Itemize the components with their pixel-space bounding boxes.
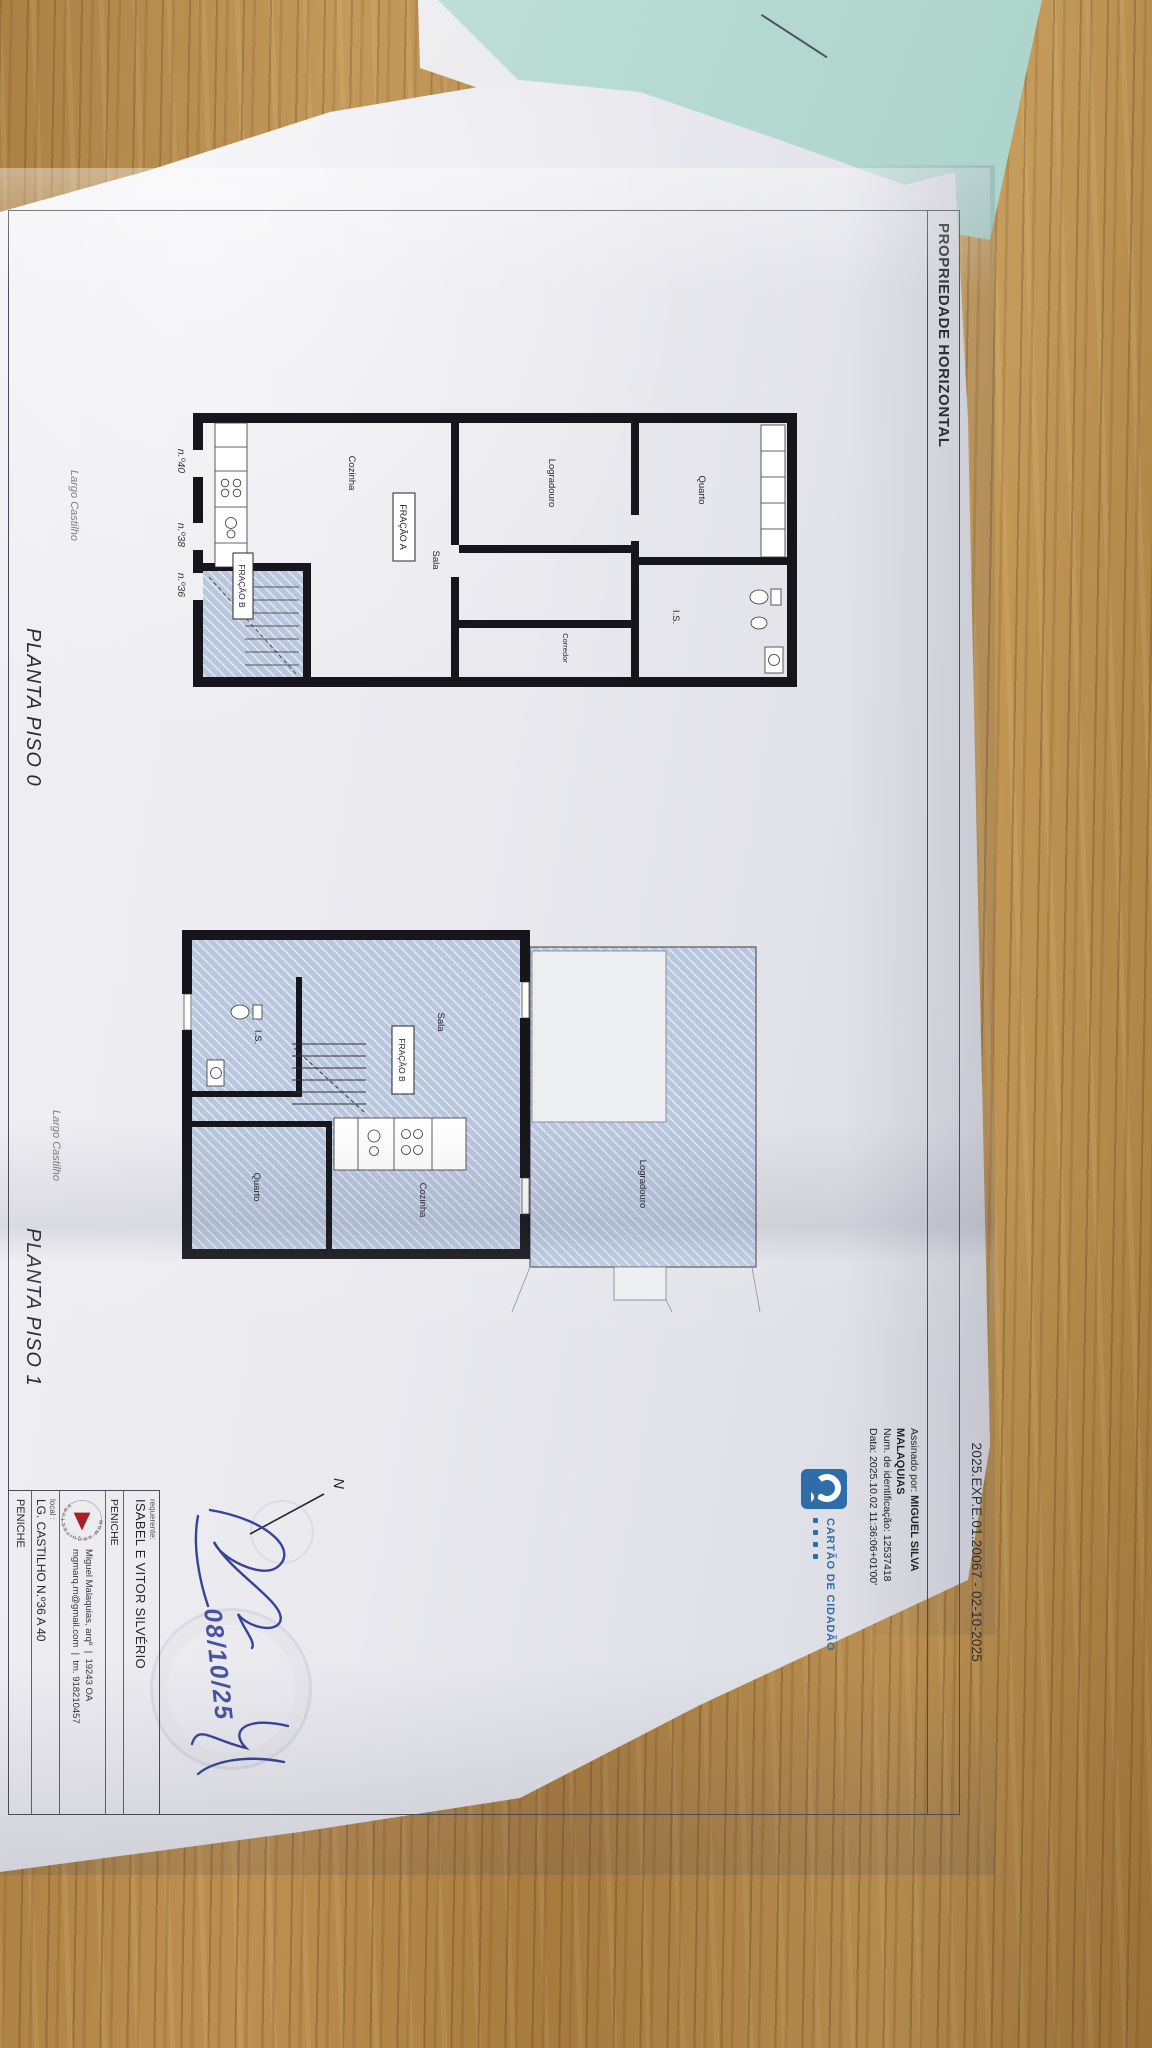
piso1-room-quarto: Quarto — [251, 1172, 262, 1201]
digital-signature-stamp: Assinado por: MIGUEL SILVA MALAQUIAS Num… — [866, 1428, 920, 1678]
piso0-room-logradouro: Logradouro — [546, 459, 557, 508]
signature-name-2: MALAQUIAS — [895, 1428, 907, 1495]
handwritten-signature — [150, 1486, 350, 1796]
architect-name: Miguel Malaquias, arqº — [84, 1549, 95, 1645]
signature-prefix: Assinado por: — [908, 1428, 920, 1492]
piso0-door-n40: n.º40 — [175, 449, 187, 473]
piso0-door-n36: n.º36 — [175, 573, 187, 597]
signature-date: Data: 2025.10.02 11:36:06+01'00' — [868, 1428, 880, 1585]
local-label: local : — [48, 1499, 57, 1807]
piso0-door-n38: n.º38 — [175, 523, 187, 547]
local-city: PENICHE — [7, 1491, 31, 1815]
street-label-piso0: Largo Castilho — [68, 470, 80, 541]
architect-email: mgmarq.m@gmail.com — [71, 1549, 82, 1647]
architect-phone: tm. 918210457 — [71, 1660, 82, 1723]
requerente-label: requerente: — [148, 1499, 157, 1807]
piso0-room-cozinha: Cozinha — [346, 456, 357, 492]
title-block-architect: MGM ARQUITECTURA Miguel Malaquias, arqº … — [59, 1491, 105, 1815]
street-label-piso1: Largo Castilho — [50, 1110, 62, 1181]
caption-piso0: PLANTA PISO 0 — [21, 628, 44, 787]
page-title: PROPRIEDADE HORIZONTAL — [927, 210, 960, 1815]
cartao-cidadao-badge: CARTÃO DE CIDADÃO — [798, 1468, 848, 1651]
piso0-room-corredor: Corredor — [561, 633, 570, 663]
caption-piso1: PLANTA PISO 1 — [21, 1228, 44, 1387]
document-content: PROPRIEDADE HORIZONTAL 2025.EXP.E.01.200… — [0, 170, 990, 1870]
process-reference: 2025.EXP.E.01.20067 - 02-10-2025 — [969, 1320, 984, 1662]
floor-plan-piso0: Quarto I.S. Corredor Logradouro Sala Coz… — [173, 395, 885, 705]
photo-scene: PROPRIEDADE HORIZONTAL 2025.EXP.E.01.200… — [0, 0, 1152, 2048]
mgm-logo: MGM ARQUITECTURA — [62, 1499, 104, 1541]
floor-plan-piso1: Logradouro Sala Cozinha Quarto I.S. FRAÇ… — [168, 922, 762, 1312]
signature-id: Num. de identificação: 12537418 — [881, 1428, 893, 1582]
piso1-room-cozinha: Cozinha — [417, 1183, 428, 1219]
requerente-name: ISABEL E VITOR SILVÉRIO — [133, 1499, 148, 1669]
signature-name-1: MIGUEL SILVA — [908, 1495, 920, 1571]
piso0-room-is: I.S. — [670, 610, 681, 624]
title-block-requerente: requerente: ISABEL E VITOR SILVÉRIO — [123, 1491, 159, 1815]
local-value: LG. CASTILHO N.º36 A 40 — [34, 1499, 48, 1641]
cartao-cidadao-dots — [813, 1518, 818, 1651]
piso1-room-sala: Sala — [435, 1012, 446, 1032]
piso1-courtyard — [512, 947, 760, 1312]
piso1-room-is: I.S. — [252, 1030, 263, 1044]
requerente-city: PENICHE — [105, 1491, 123, 1815]
piso0-fracao-a-label: FRAÇÃO A — [398, 504, 408, 550]
separator-1: | — [84, 1651, 95, 1653]
cartao-cidadao-label: CARTÃO DE CIDADÃO — [824, 1518, 836, 1651]
piso1-fracao-b-label: FRAÇÃO B — [397, 1038, 407, 1082]
title-block: requerente: ISABEL E VITOR SILVÉRIO PENI… — [8, 1490, 160, 1815]
piso1-fraction-label: FRAÇÃO B — [392, 1026, 414, 1094]
piso0-room-sala: Sala — [430, 550, 441, 570]
piso0-fracao-b-label: FRAÇÃO B — [237, 564, 247, 608]
piso1-room-logradouro: Logradouro — [637, 1160, 648, 1209]
piso0-room-quarto: Quarto — [696, 475, 707, 504]
architect-reg: 19243 OA — [84, 1658, 95, 1701]
cartao-cidadao-icon — [798, 1468, 848, 1510]
separator-2: | — [71, 1653, 82, 1655]
title-block-local: local : LG. CASTILHO N.º36 A 40 — [31, 1491, 59, 1815]
